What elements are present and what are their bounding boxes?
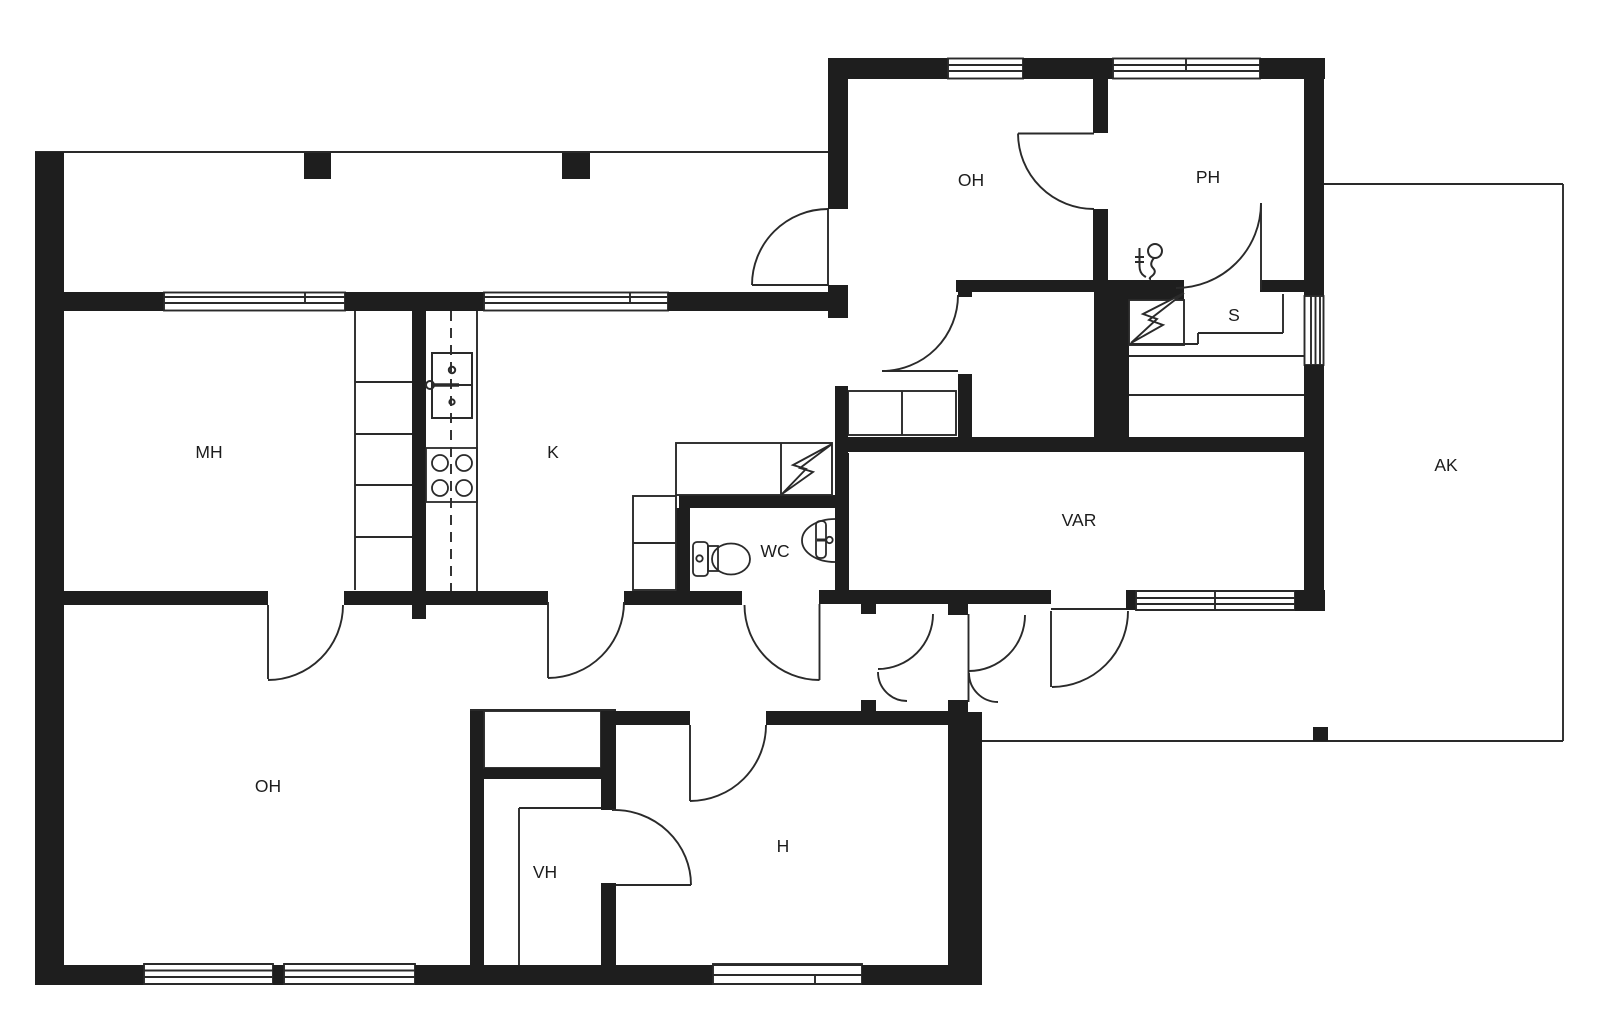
svg-text:MH: MH <box>195 442 222 462</box>
svg-text:H: H <box>777 836 790 856</box>
svg-text:VAR: VAR <box>1062 510 1097 530</box>
svg-text:S: S <box>1228 305 1240 325</box>
svg-text:VH: VH <box>533 862 557 882</box>
svg-text:K: K <box>547 442 559 462</box>
svg-text:OH: OH <box>958 170 984 190</box>
svg-text:PH: PH <box>1196 167 1220 187</box>
svg-text:WC: WC <box>760 541 789 561</box>
svg-text:AK: AK <box>1434 455 1458 475</box>
svg-text:OH: OH <box>255 776 281 796</box>
